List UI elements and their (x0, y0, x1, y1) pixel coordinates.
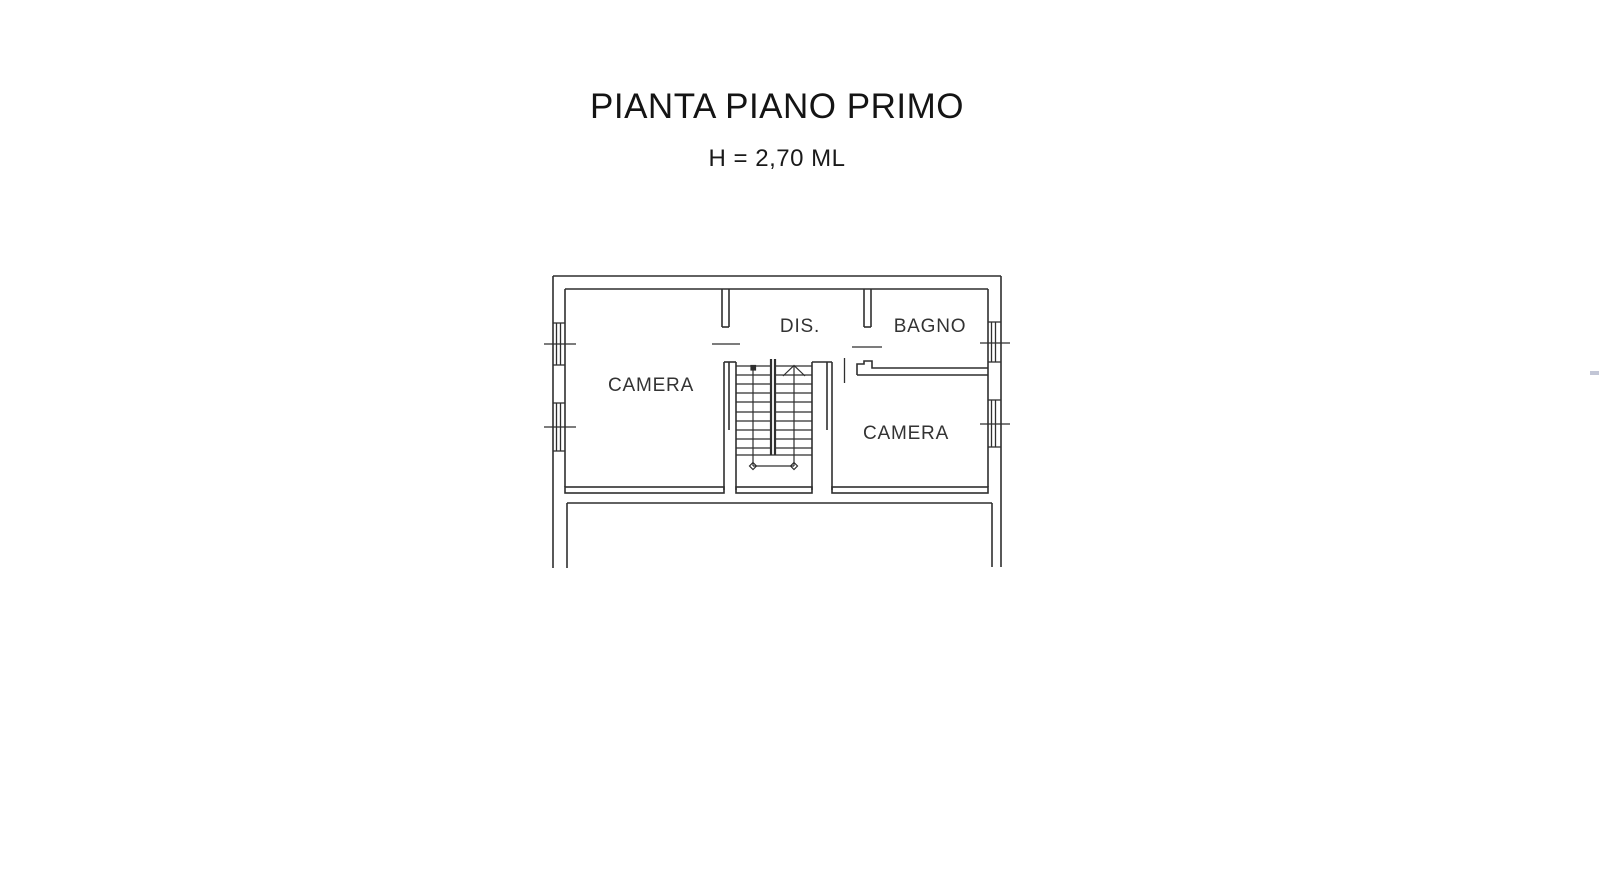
room-label-camera-right: CAMERA (863, 423, 949, 445)
room-label-disimpegno: DIS. (780, 316, 820, 338)
stair-stringer (771, 359, 775, 455)
page: PIANTA PIANO PRIMO H = 2,70 ML (0, 0, 1600, 896)
wall-bagno-camera (857, 361, 988, 375)
lower-section-outline (567, 503, 992, 568)
window-symbol-left-2 (544, 403, 576, 451)
window-symbol-right-1 (980, 322, 1010, 362)
scan-artifact-mark (1590, 371, 1599, 375)
partition-dis-bagno (864, 289, 871, 327)
bottom-wall (565, 487, 988, 493)
window-symbol-right-2 (980, 400, 1010, 447)
stair-direction-line (750, 366, 806, 470)
floor-plan-drawing (0, 0, 1600, 896)
partition-camera-dis (722, 289, 729, 327)
room-label-camera-left: CAMERA (608, 375, 694, 397)
room-label-bagno: BAGNO (894, 316, 967, 338)
staircase (724, 359, 832, 490)
window-symbol-left-1 (544, 323, 576, 365)
